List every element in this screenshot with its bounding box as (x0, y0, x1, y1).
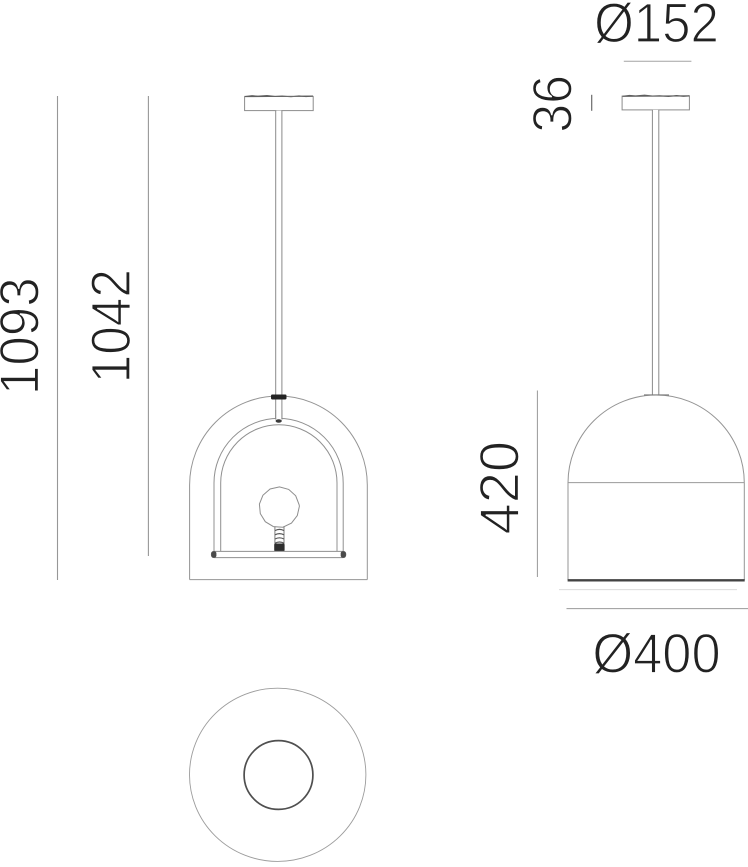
svg-text:Ø152: Ø152 (594, 0, 719, 54)
svg-text:Ø400: Ø400 (592, 623, 720, 685)
svg-text:420: 420 (469, 441, 531, 535)
svg-text:1042: 1042 (81, 269, 142, 383)
svg-text:1093: 1093 (0, 277, 51, 395)
svg-text:36: 36 (522, 75, 584, 133)
